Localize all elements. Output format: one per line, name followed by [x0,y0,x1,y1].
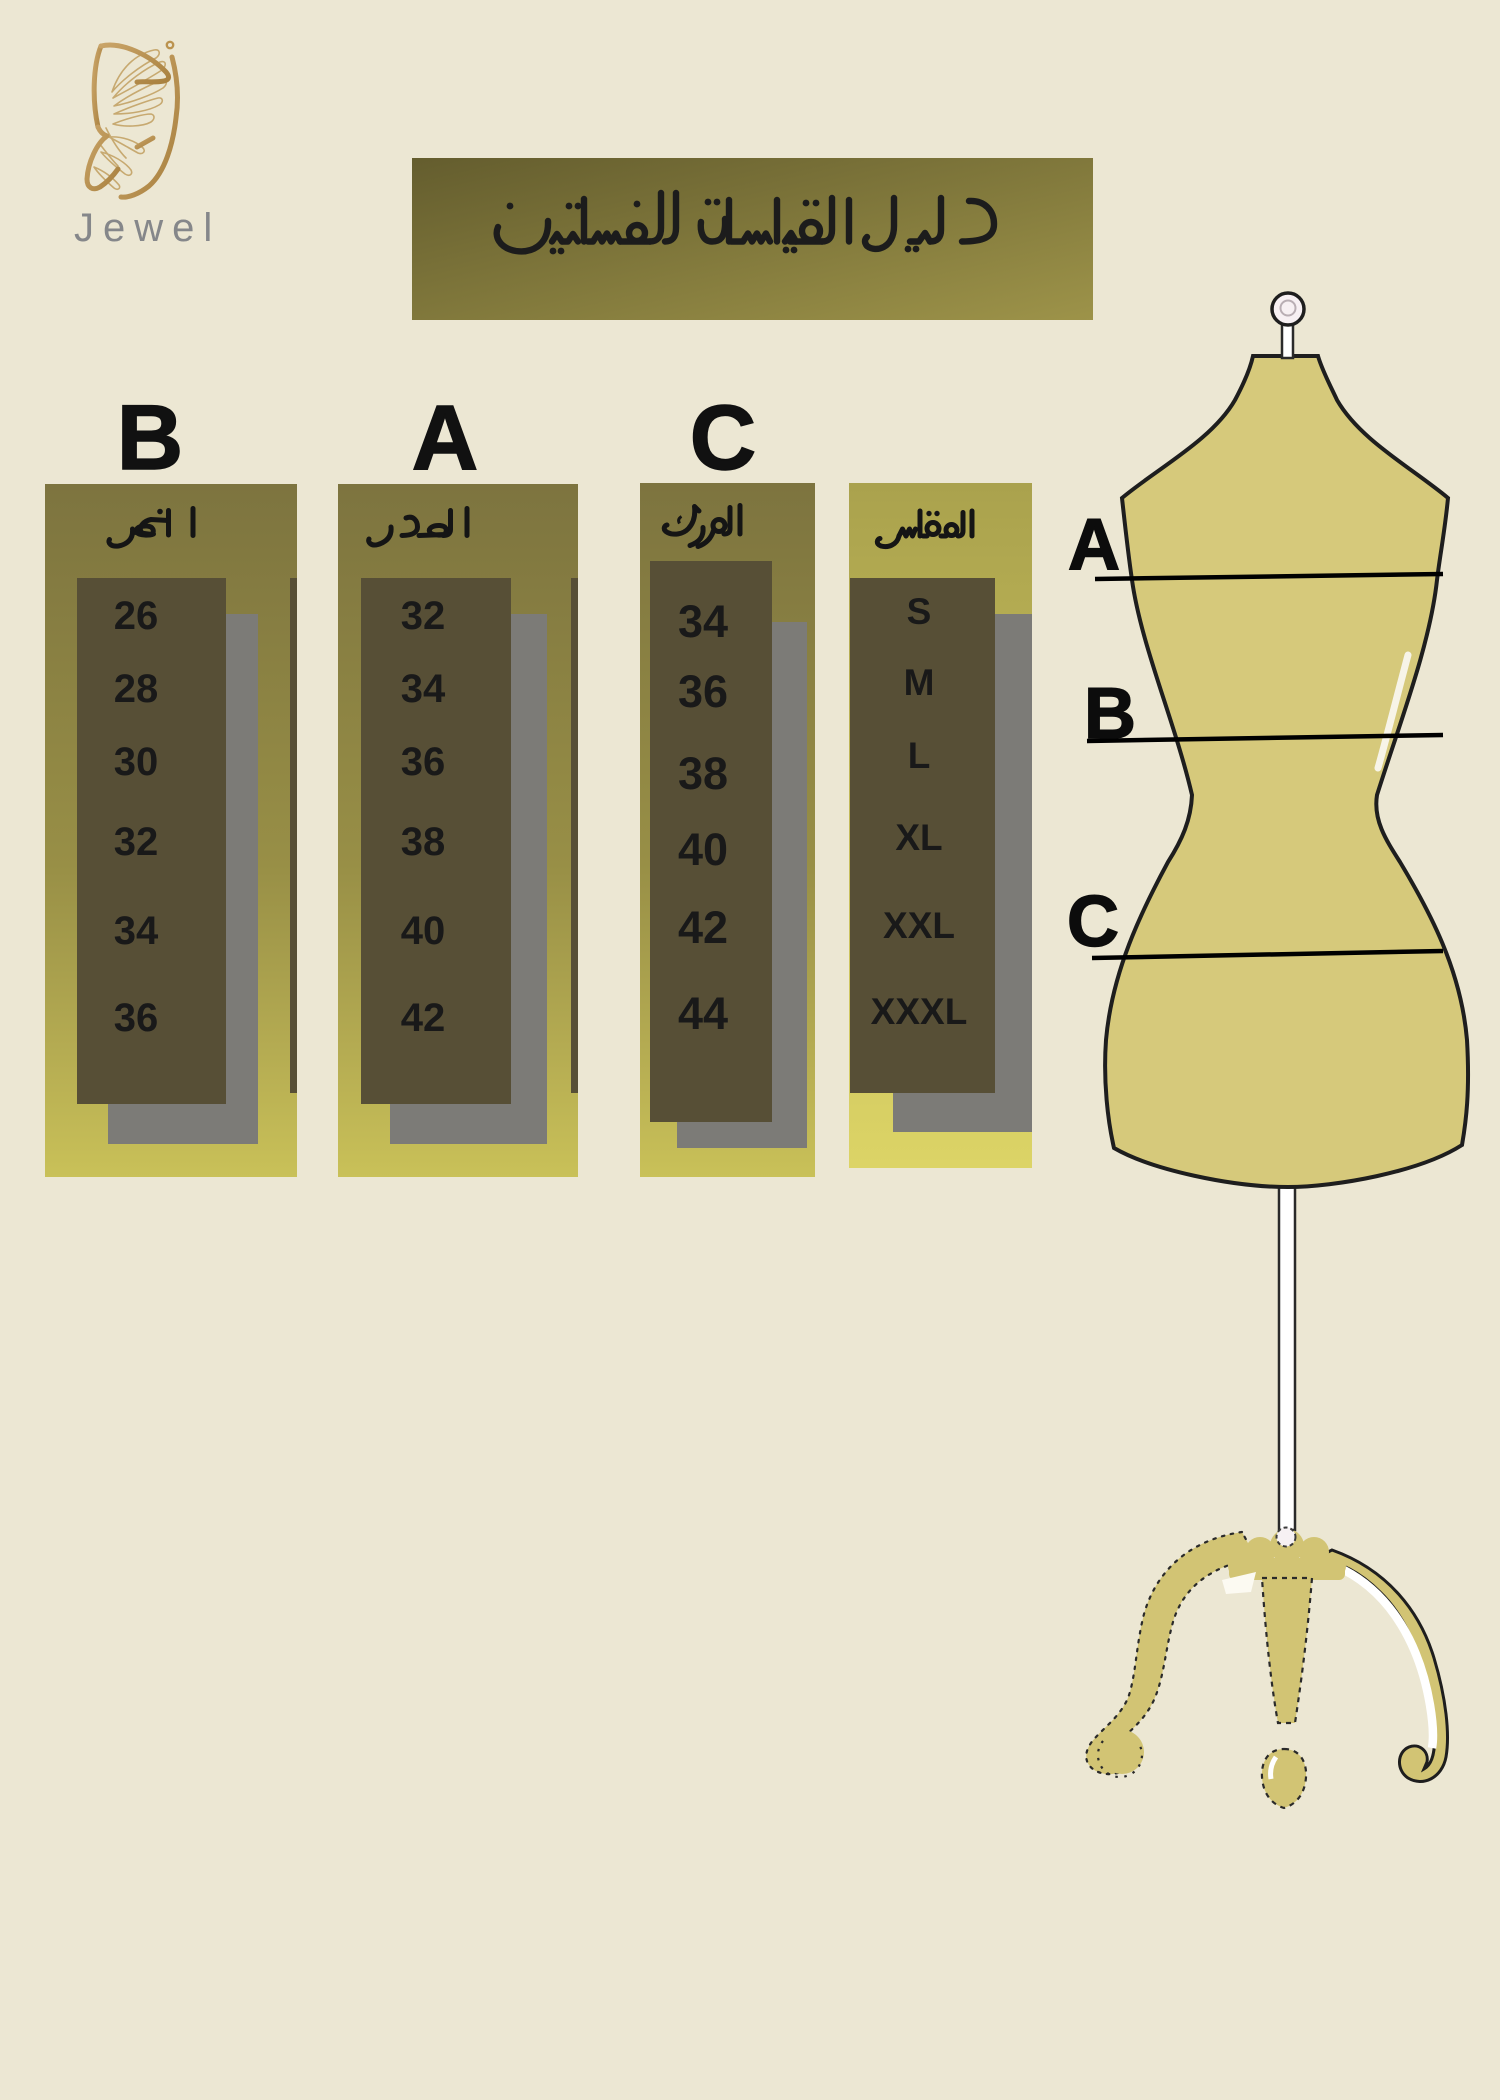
svg-text:42: 42 [401,996,446,1040]
svg-text:40: 40 [401,909,446,953]
svg-text:A: A [1068,505,1120,585]
svg-text:B: B [117,387,183,489]
svg-text:C: C [1067,882,1119,962]
svg-text:B: B [1084,674,1136,754]
svg-text:C: C [690,387,756,489]
svg-text:28: 28 [114,667,159,711]
svg-text:M: M [904,662,935,703]
svg-text:30: 30 [114,740,159,784]
svg-text:S: S [907,591,932,632]
svg-text:32: 32 [401,594,446,638]
svg-text:36: 36 [401,740,446,784]
svg-text:32: 32 [114,820,159,864]
svg-text:36: 36 [678,666,728,717]
svg-text:40: 40 [678,824,728,875]
svg-text:XXL: XXL [883,905,955,946]
svg-text:A: A [412,387,478,489]
svg-text:42: 42 [678,902,728,953]
svg-text:38: 38 [401,820,446,864]
svg-text:L: L [908,735,931,776]
svg-text:XXXL: XXXL [871,991,968,1032]
svg-text:34: 34 [401,667,446,711]
svg-text:44: 44 [678,988,728,1039]
svg-text:34: 34 [678,596,728,647]
svg-text:34: 34 [114,909,159,953]
svg-text:38: 38 [678,748,728,799]
svg-text:36: 36 [114,996,159,1040]
svg-text:26: 26 [114,594,159,638]
svg-text:XL: XL [895,817,942,858]
svg-text:Jewel: Jewel [74,206,221,250]
